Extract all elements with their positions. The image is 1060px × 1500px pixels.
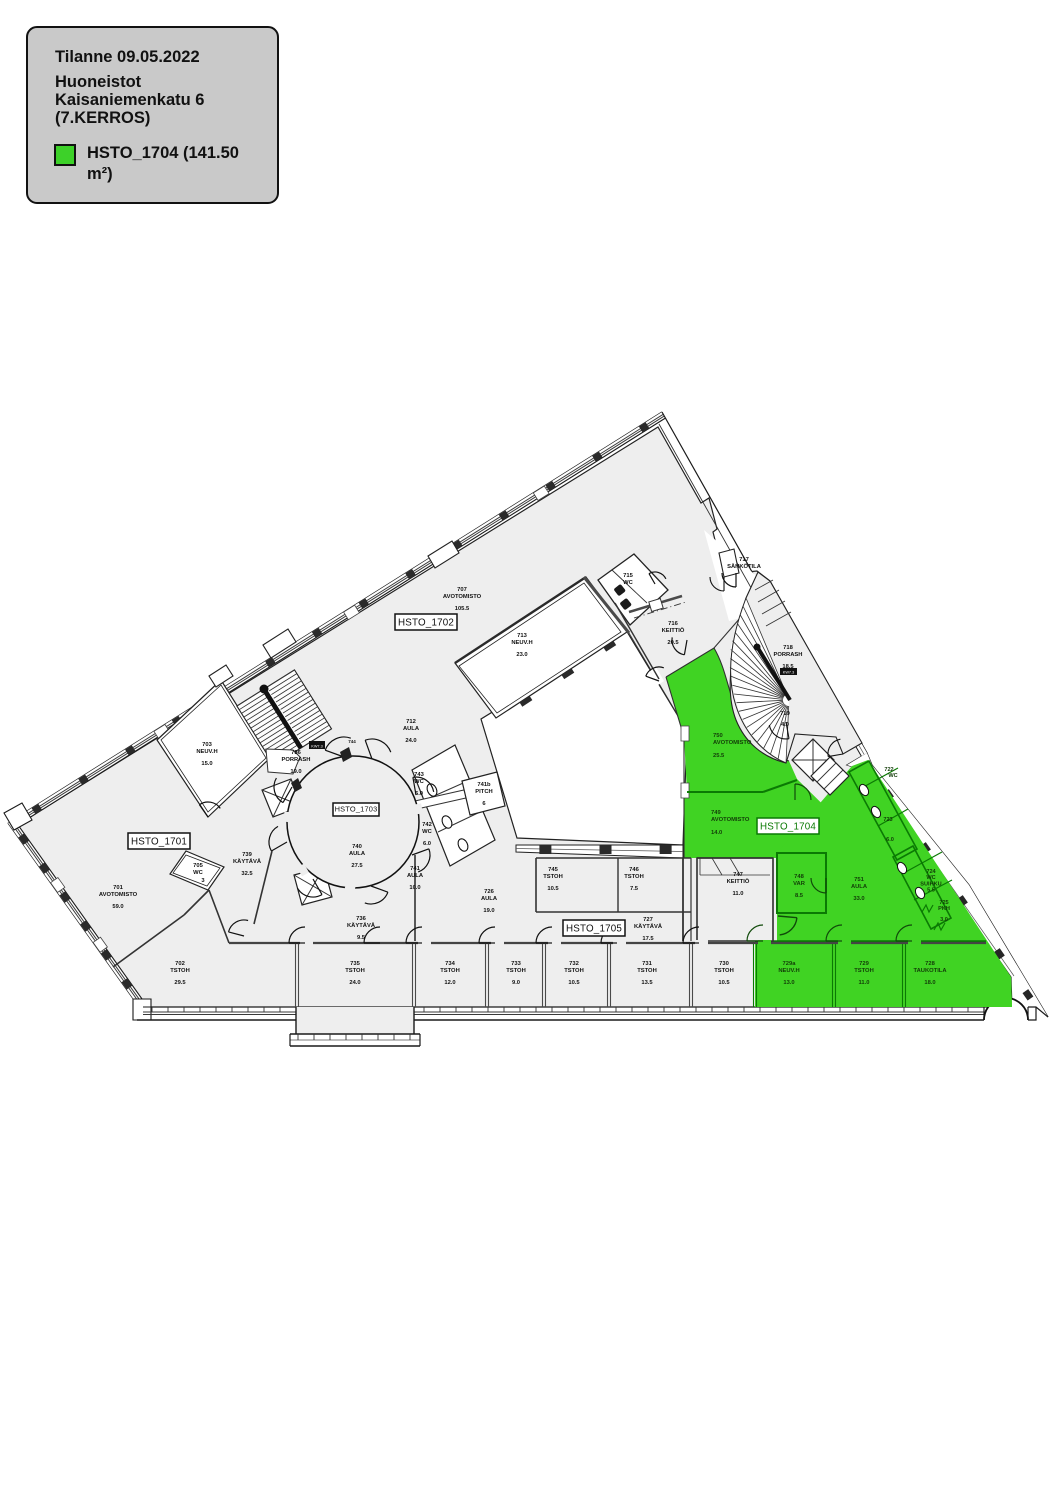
svg-text:HSTO_1705: HSTO_1705 <box>566 924 622 935</box>
svg-text:33.0: 33.0 <box>853 896 864 902</box>
svg-text:3.0: 3.0 <box>940 917 948 923</box>
svg-text:TSTOH: TSTOH <box>506 968 526 974</box>
svg-text:740: 740 <box>352 844 362 850</box>
svg-text:731: 731 <box>642 961 652 967</box>
svg-text:HSTO_1704: HSTO_1704 <box>760 822 816 833</box>
svg-text:WC: WC <box>926 875 935 881</box>
svg-text:32.5: 32.5 <box>241 871 253 877</box>
svg-text:730: 730 <box>719 961 729 967</box>
svg-text:KÄYTÄVÄ: KÄYTÄVÄ <box>233 858 262 865</box>
svg-text:17.5: 17.5 <box>642 936 654 942</box>
svg-text:18.0: 18.0 <box>924 980 935 986</box>
svg-text:746: 746 <box>629 867 639 873</box>
svg-text:744: 744 <box>348 739 356 744</box>
svg-text:723: 723 <box>883 817 892 823</box>
svg-text:713: 713 <box>517 633 527 639</box>
svg-text:9.0: 9.0 <box>512 980 520 986</box>
svg-text:25.5: 25.5 <box>713 753 725 759</box>
svg-text:10.5: 10.5 <box>568 980 580 986</box>
svg-text:TSTOH: TSTOH <box>543 874 563 880</box>
svg-text:PKH: PKH <box>938 906 950 912</box>
svg-text:729: 729 <box>859 961 869 967</box>
svg-text:750: 750 <box>713 733 723 739</box>
svg-text:725: 725 <box>939 900 948 906</box>
svg-text:TSTOH: TSTOH <box>854 968 874 974</box>
svg-text:11.0: 11.0 <box>733 891 744 897</box>
svg-text:10.5: 10.5 <box>547 886 559 892</box>
svg-text:9.5: 9.5 <box>357 935 366 941</box>
svg-text:716: 716 <box>668 621 678 627</box>
svg-text:27.5: 27.5 <box>351 863 363 869</box>
svg-text:VAR: VAR <box>793 881 806 887</box>
svg-text:TSTOH: TSTOH <box>170 968 190 974</box>
svg-text:8.5: 8.5 <box>795 893 804 899</box>
svg-text:743: 743 <box>414 772 424 778</box>
svg-text:707: 707 <box>457 587 467 593</box>
svg-text:WC: WC <box>623 580 633 586</box>
svg-text:AULA: AULA <box>349 851 366 857</box>
svg-text:732: 732 <box>569 961 579 967</box>
svg-text:AULA: AULA <box>403 726 420 732</box>
svg-text:747: 747 <box>733 872 743 878</box>
svg-text:717: 717 <box>739 557 749 563</box>
svg-text:WC: WC <box>422 829 432 835</box>
svg-text:718: 718 <box>783 645 793 651</box>
svg-text:KÄYTÄVÄ: KÄYTÄVÄ <box>634 923 663 930</box>
svg-text:23.0: 23.0 <box>516 652 527 658</box>
svg-text:WC: WC <box>193 870 203 876</box>
svg-text:24.0: 24.0 <box>405 738 416 744</box>
svg-text:AVOTOMISTO: AVOTOMISTO <box>713 740 752 746</box>
svg-text:751: 751 <box>854 877 864 883</box>
svg-text:19.0: 19.0 <box>290 769 301 775</box>
svg-text:PORRASH: PORRASH <box>282 757 311 763</box>
svg-text:WC: WC <box>414 779 424 785</box>
svg-text:11.0: 11.0 <box>859 980 870 986</box>
svg-text:701: 701 <box>113 885 123 891</box>
svg-text:748: 748 <box>794 874 804 880</box>
svg-text:729a: 729a <box>783 961 797 967</box>
svg-text:TSTOH: TSTOH <box>714 968 734 974</box>
svg-text:736: 736 <box>356 916 366 922</box>
svg-text:727: 727 <box>643 917 653 923</box>
svg-text:719: 719 <box>780 711 790 717</box>
svg-text:KEITTIÖ: KEITTIÖ <box>662 627 685 634</box>
svg-text:WC: WC <box>888 773 897 779</box>
svg-text:KW7.3: KW7.3 <box>311 745 322 749</box>
svg-text:TSTOH: TSTOH <box>345 968 365 974</box>
svg-text:15.0: 15.0 <box>201 761 212 767</box>
svg-text:TSTOH: TSTOH <box>637 968 657 974</box>
svg-text:786: 786 <box>291 750 301 756</box>
svg-text:10.0: 10.0 <box>409 885 420 891</box>
svg-text:6.0: 6.0 <box>423 841 431 847</box>
svg-text:SUIHKU: SUIHKU <box>920 881 941 887</box>
svg-text:13.5: 13.5 <box>641 980 653 986</box>
svg-text:705: 705 <box>193 863 203 869</box>
svg-text:724: 724 <box>926 869 936 875</box>
svg-text:AVOTOMISTO: AVOTOMISTO <box>443 594 482 600</box>
svg-text:AULA: AULA <box>481 896 498 902</box>
svg-text:TAUKOTILA: TAUKOTILA <box>913 968 947 974</box>
svg-text:733: 733 <box>511 961 521 967</box>
svg-text:HSTO_1703: HSTO_1703 <box>335 805 378 814</box>
svg-text:741b: 741b <box>477 782 491 788</box>
svg-text:59.0: 59.0 <box>112 904 123 910</box>
svg-text:PITCH: PITCH <box>475 789 492 795</box>
svg-text:715: 715 <box>623 573 633 579</box>
svg-text:24.0: 24.0 <box>349 980 360 986</box>
svg-text:TSTOH: TSTOH <box>564 968 584 974</box>
svg-text:745: 745 <box>548 867 558 873</box>
svg-text:702: 702 <box>175 961 185 967</box>
svg-text:105.5: 105.5 <box>455 606 470 612</box>
svg-text:712: 712 <box>406 719 416 725</box>
svg-text:TSTOH: TSTOH <box>440 968 460 974</box>
svg-text:728: 728 <box>925 961 935 967</box>
svg-text:734: 734 <box>445 961 455 967</box>
svg-text:13.0: 13.0 <box>783 980 794 986</box>
svg-text:14.0: 14.0 <box>711 830 722 836</box>
svg-text:KEITTIÖ: KEITTIÖ <box>727 878 750 885</box>
svg-text:739: 739 <box>242 852 252 858</box>
svg-text:HSTO_1701: HSTO_1701 <box>131 837 187 848</box>
svg-text:NEUV.H: NEUV.H <box>196 749 217 755</box>
svg-text:NEUV.H: NEUV.H <box>778 968 799 974</box>
svg-text:7.5: 7.5 <box>630 886 639 892</box>
svg-text:5.5: 5.5 <box>927 888 935 894</box>
svg-text:PORRASH: PORRASH <box>774 652 803 658</box>
svg-text:20.5: 20.5 <box>667 640 679 646</box>
svg-text:29.5: 29.5 <box>174 980 186 986</box>
svg-text:741: 741 <box>410 866 420 872</box>
svg-text:KÄYTÄVÄ: KÄYTÄVÄ <box>347 922 376 929</box>
svg-text:TSTOH: TSTOH <box>624 874 644 880</box>
svg-text:AVOTOMISTO: AVOTOMISTO <box>711 817 750 823</box>
svg-text:735: 735 <box>350 961 360 967</box>
svg-text:SÄHKÖTILA: SÄHKÖTILA <box>727 563 762 570</box>
svg-text:NEUV.H: NEUV.H <box>511 640 532 646</box>
svg-text:10.5: 10.5 <box>718 980 730 986</box>
svg-text:6.0: 6.0 <box>415 791 423 797</box>
svg-text:749: 749 <box>711 810 721 816</box>
svg-text:HSTO_1702: HSTO_1702 <box>398 618 454 629</box>
svg-text:703: 703 <box>202 742 212 748</box>
svg-text:4.0: 4.0 <box>781 722 789 728</box>
svg-text:AVOTOMISTO: AVOTOMISTO <box>99 892 138 898</box>
svg-text:726: 726 <box>484 889 494 895</box>
svg-text:AULA: AULA <box>407 873 424 879</box>
svg-text:AULA: AULA <box>851 884 868 890</box>
svg-text:12.0: 12.0 <box>444 980 455 986</box>
svg-text:19.0: 19.0 <box>483 908 494 914</box>
svg-text:6.0: 6.0 <box>886 837 894 843</box>
svg-text:KW7.3: KW7.3 <box>783 671 794 675</box>
svg-text:742: 742 <box>422 822 432 828</box>
